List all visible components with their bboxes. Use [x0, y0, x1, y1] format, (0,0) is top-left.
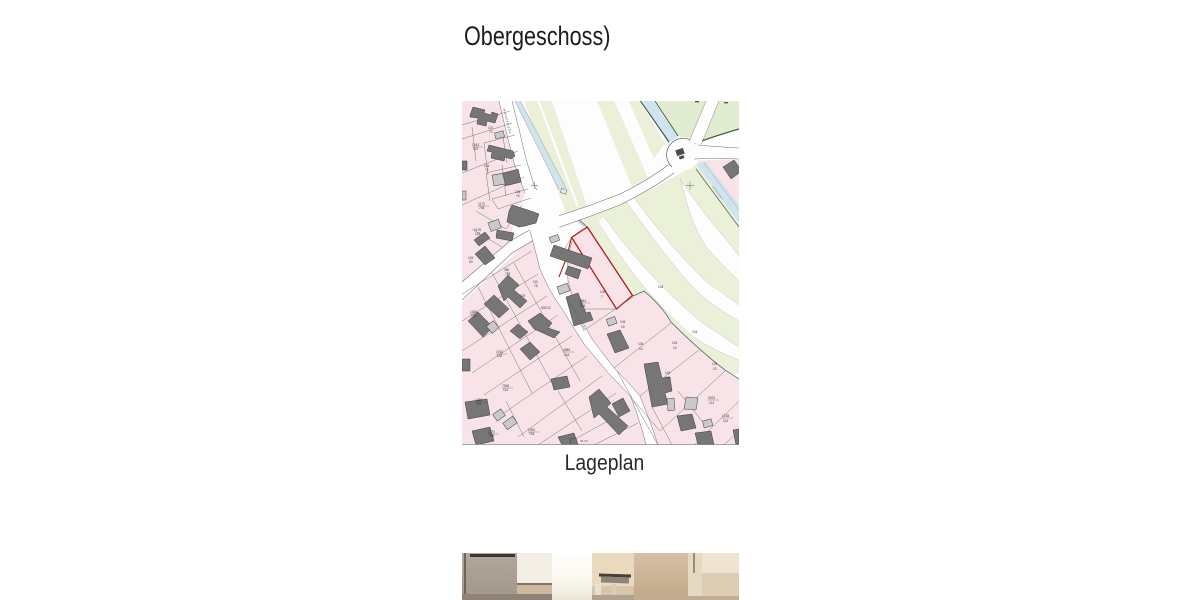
svg-text:755: 755: [505, 272, 511, 276]
svg-text:104: 104: [672, 341, 678, 345]
svg-text:46.19: 46.19: [580, 439, 588, 443]
svg-text:2685: 2685: [563, 348, 570, 352]
svg-text:104: 104: [564, 353, 570, 357]
svg-text:114: 114: [503, 388, 508, 392]
svg-text:13: 13: [673, 346, 677, 350]
svg-text:104: 104: [497, 354, 503, 358]
svg-text:104: 104: [665, 371, 671, 375]
svg-text:90: 90: [469, 260, 473, 264]
svg-text:14: 14: [639, 347, 643, 351]
svg-text:520/12: 520/12: [541, 306, 551, 310]
svg-text:113: 113: [475, 232, 480, 236]
svg-text:15: 15: [666, 376, 670, 380]
svg-text:114: 114: [723, 419, 728, 423]
svg-text:7: 7: [601, 295, 603, 299]
svg-text:708: 708: [489, 434, 495, 438]
svg-text:104: 104: [620, 320, 626, 324]
svg-text:104: 104: [658, 285, 664, 289]
svg-text:104: 104: [580, 304, 586, 308]
svg-text:104: 104: [600, 290, 606, 294]
svg-text:2684: 2684: [579, 299, 586, 303]
svg-text:76: 76: [516, 194, 520, 198]
svg-text:15: 15: [621, 325, 625, 329]
svg-text:704: 704: [476, 402, 482, 406]
svg-text:708: 708: [479, 206, 485, 210]
svg-text:122: 122: [473, 147, 479, 151]
svg-text:2813: 2813: [708, 396, 715, 400]
svg-text:1738: 1738: [722, 414, 729, 418]
svg-text:70: 70: [489, 130, 493, 134]
svg-text:104: 104: [692, 330, 698, 334]
svg-text:74: 74: [485, 168, 489, 172]
svg-text:104: 104: [638, 342, 644, 346]
svg-text:13: 13: [713, 367, 717, 371]
svg-text:120: 120: [520, 294, 526, 298]
svg-text:104: 104: [712, 362, 718, 366]
svg-text:78: 78: [534, 284, 538, 288]
svg-text:114: 114: [709, 401, 714, 405]
svg-text:704: 704: [471, 314, 477, 318]
svg-text:704: 704: [529, 432, 535, 436]
